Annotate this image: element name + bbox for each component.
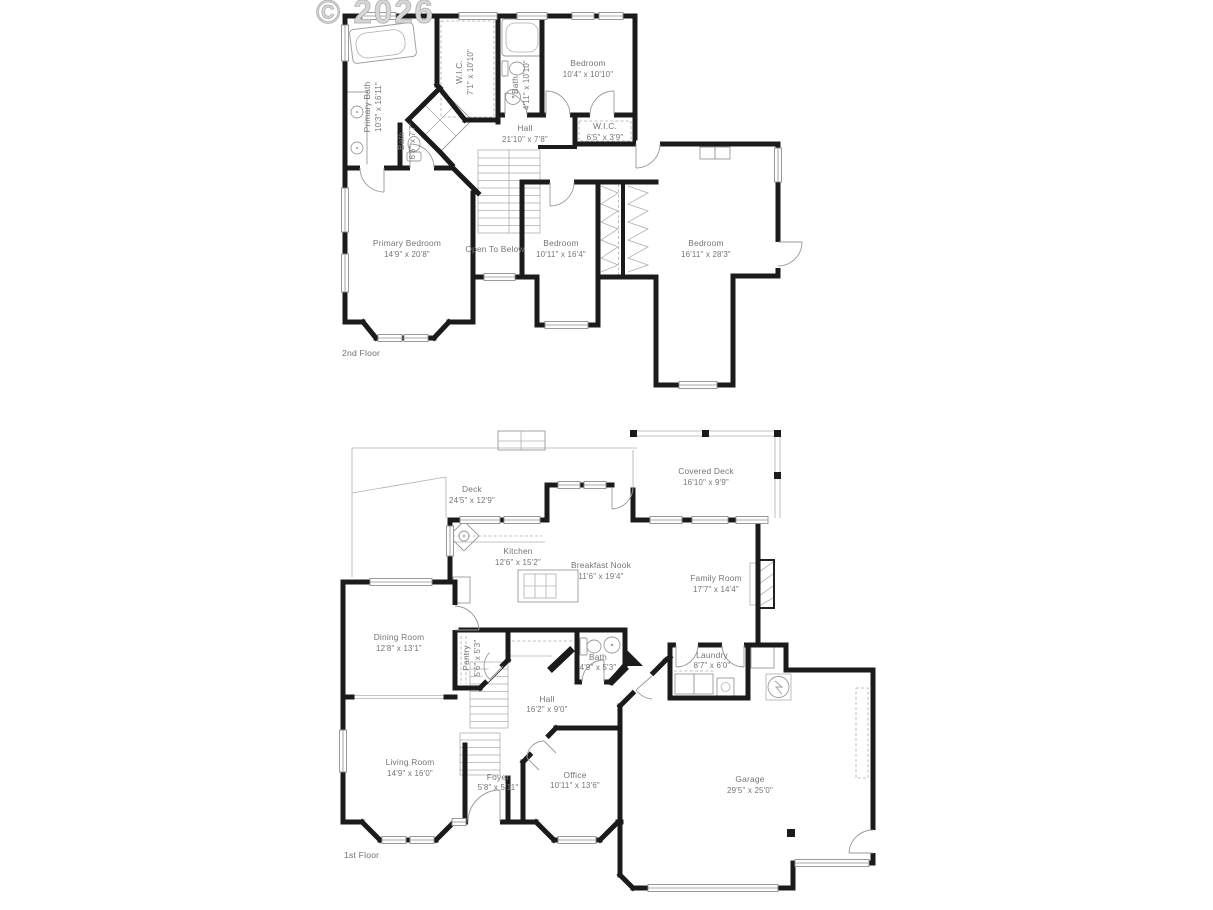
window-icon <box>599 13 623 20</box>
bathtub-icon <box>502 19 542 56</box>
window-icon <box>484 274 515 281</box>
door-arc <box>636 144 660 168</box>
window-icon <box>584 482 606 489</box>
window-icon <box>342 188 349 232</box>
window-icon <box>775 148 782 182</box>
window-icon <box>679 382 717 389</box>
window-icon <box>460 517 500 524</box>
cooktop-icon <box>524 574 556 598</box>
room-label: W.I.C. <box>593 121 617 131</box>
room-label: Hall <box>517 123 532 133</box>
room-dims: 16'2" x 9'0" <box>526 705 567 714</box>
window-icon <box>572 13 594 20</box>
copyright-watermark: © 2026 <box>316 0 435 30</box>
water-heater-icon <box>766 674 791 700</box>
window-icon <box>370 579 432 586</box>
fireplace-icon <box>750 560 774 608</box>
room-dims: 6'5" x 3'9" <box>587 133 624 142</box>
floor-caption: 2nd Floor <box>342 348 380 358</box>
window-icon <box>342 25 349 61</box>
second-floor-windows <box>342 13 782 389</box>
room-label: Covered Deck <box>678 466 734 476</box>
room-dims: 7'1" x 10'10" <box>466 49 475 95</box>
first-floor-walls <box>343 485 873 888</box>
door-arc <box>849 830 873 853</box>
kitchen-island <box>518 570 578 602</box>
room-label: Primary Bedroom <box>373 238 441 248</box>
room-dims: 5'8" x 5'11" <box>478 783 519 792</box>
garage-post <box>787 829 795 837</box>
window-icon <box>558 482 580 489</box>
room-dims: 5'6" x 5'3" <box>473 640 482 677</box>
window-icon <box>692 517 728 524</box>
bay-window-icon <box>558 837 596 844</box>
second-floor-walls <box>345 16 778 385</box>
closet-shelf <box>715 147 730 159</box>
room-label: Bedroom <box>543 238 578 248</box>
garage-door-icon <box>648 885 778 892</box>
room-dims: 10'4" x 10'10" <box>563 70 613 79</box>
room-label: Garage <box>735 774 764 784</box>
room-label: Laundry <box>696 650 728 660</box>
utility-sink-icon <box>717 678 734 696</box>
window-icon <box>342 254 349 292</box>
window-icon <box>447 526 454 556</box>
room-label: Bedroom <box>570 58 605 68</box>
wall-wedge <box>627 650 643 666</box>
window-icon <box>504 517 540 524</box>
room-dims: 16'10" x 9'9" <box>683 478 729 487</box>
room-dims: 4'11" x 10'10" <box>522 60 531 110</box>
room-label: Deck <box>462 484 482 494</box>
room-label: Bath <box>589 652 607 662</box>
room-dims: 10'11" x 16'4" <box>536 250 586 259</box>
window-icon <box>736 517 768 524</box>
room-label: Open To Below <box>465 244 525 254</box>
door-arc <box>778 242 802 266</box>
room-dims: 14'9" x 20'8" <box>384 250 430 259</box>
door-arc <box>612 487 633 509</box>
door-arc <box>468 790 500 822</box>
first-floor-plan: Deck 24'5" x 12'9" Covered Deck 16'10" x… <box>340 430 877 892</box>
room-label: Bath <box>510 76 520 94</box>
room-label: Foyer <box>487 772 509 782</box>
sidelite-window-icon <box>452 819 466 826</box>
door-arc <box>550 182 574 206</box>
room-label: W.I.C. <box>454 60 464 84</box>
staircase-up <box>478 150 540 233</box>
cased-opening <box>352 696 446 699</box>
room-label: Bath <box>396 132 406 150</box>
window-icon <box>545 322 588 329</box>
room-dims: 10'11" x 13'6" <box>550 781 600 790</box>
room-dims: 17'7" x 14'4" <box>693 585 739 594</box>
room-dims: 6'5" x 7'7" <box>408 123 417 160</box>
room-dims: 4'9" x 5'3" <box>580 663 617 672</box>
grill-icon <box>498 431 545 450</box>
floor-caption: 1st Floor <box>344 850 379 860</box>
room-label: Pantry <box>461 645 471 671</box>
second-floor-plan: Primary Bath 10'3" x 16'11" W.I.C. 7'1" … <box>342 13 803 389</box>
room-label: Primary Bath <box>362 81 372 132</box>
room-label: Office <box>564 770 587 780</box>
room-dims: 16'11" x 28'3" <box>681 250 731 259</box>
room-label: Bedroom <box>688 238 723 248</box>
sink-icon <box>604 637 620 653</box>
room-dims: 10'3" x 16'11" <box>374 82 383 132</box>
window-icon <box>650 517 682 524</box>
room-dims: 12'6" x 15'2" <box>495 558 541 567</box>
room-dims: 21'10" x 7'8" <box>502 135 548 144</box>
room-label: Kitchen <box>503 546 532 556</box>
closet-shelf <box>700 147 715 159</box>
second-floor-openings <box>342 13 782 389</box>
furnace-icon <box>751 647 774 668</box>
room-label: Hall <box>539 694 554 704</box>
room-label: Living Room <box>386 757 435 767</box>
washer-dryer-icon <box>674 671 714 694</box>
room-dims: 8'7" x 6'0" <box>694 661 731 670</box>
room-label: Breakfast Nook <box>571 560 632 570</box>
window-icon <box>459 13 497 20</box>
room-dims: 29'5" x 25'0" <box>727 786 773 795</box>
room-dims: 12'8" x 13'1" <box>376 644 422 653</box>
room-label: Dining Room <box>374 632 425 642</box>
door-arc <box>546 91 570 115</box>
window-icon <box>517 13 547 20</box>
room-dims: 14'9" x 16'0" <box>387 769 433 778</box>
floor-plan-page: Primary Bath 10'3" x 16'11" W.I.C. 7'1" … <box>0 0 1213 910</box>
room-dims: 24'5" x 12'9" <box>449 496 495 505</box>
room-dims: 11'6" x 19'4" <box>578 572 623 581</box>
window-icon <box>340 730 347 772</box>
garage-door-icon <box>795 860 869 867</box>
room-label: Family Room <box>690 573 742 583</box>
floor-plan-canvas: Primary Bath 10'3" x 16'11" W.I.C. 7'1" … <box>0 0 1213 910</box>
door-arc <box>590 91 614 115</box>
door-arc <box>360 168 384 192</box>
door-arc <box>455 606 479 630</box>
garage-storage-dashed <box>856 688 868 778</box>
